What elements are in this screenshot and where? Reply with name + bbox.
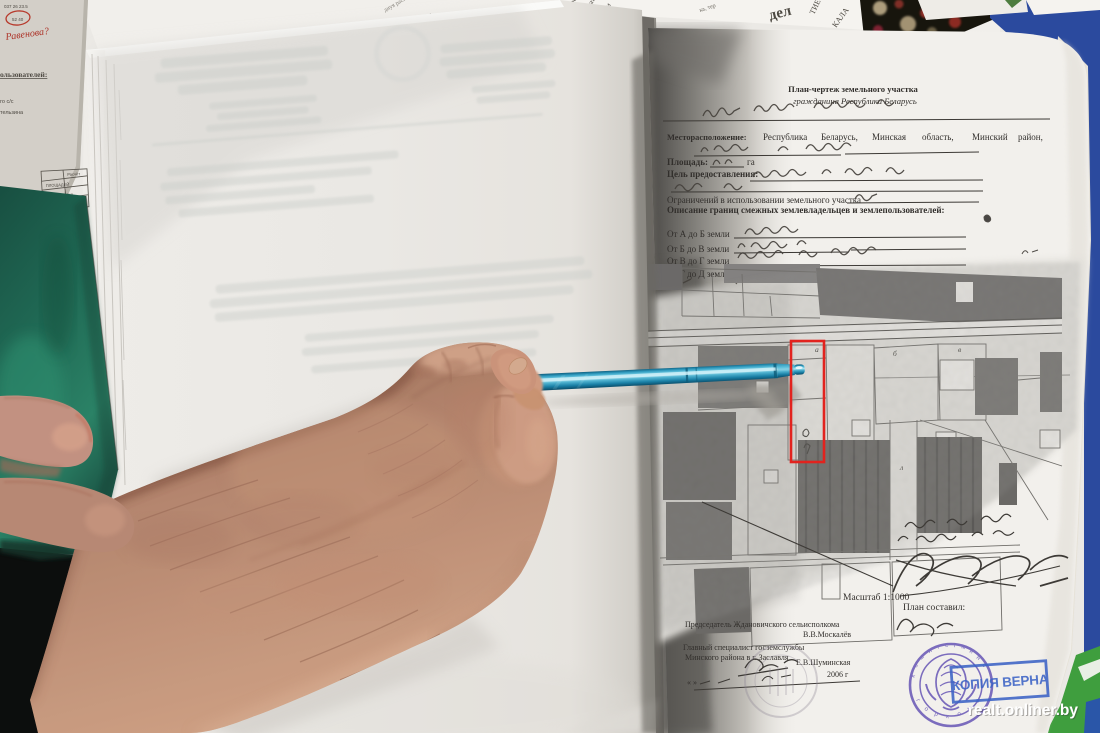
- svg-text:район,: район,: [1018, 132, 1043, 142]
- svg-text:Месторасположение:: Месторасположение:: [667, 133, 747, 142]
- svg-text:От А до Б земли: От А до Б земли: [667, 229, 730, 239]
- svg-text:го с/с: го с/с: [0, 99, 14, 105]
- svg-text:План составил:: План составил:: [903, 603, 965, 613]
- svg-text:План-чертеж земельного участка: План-чертеж земельного участка: [788, 84, 918, 94]
- svg-text:Минская: Минская: [872, 132, 906, 142]
- svg-text:От Б до В земли: От Б до В земли: [667, 244, 729, 254]
- svg-text:тельзина: тельзина: [0, 110, 24, 116]
- svg-text:realt.onliner.by: realt.onliner.by: [968, 702, 1079, 719]
- svg-text:Расчёт: Расчёт: [67, 171, 80, 177]
- svg-text:Главный специалист госземслужб: Главный специалист госземслужбы: [683, 643, 805, 652]
- svg-text:037 26 23.5: 037 26 23.5: [4, 4, 28, 9]
- svg-text:52 40: 52 40: [12, 17, 24, 22]
- svg-text:га: га: [747, 157, 755, 167]
- svg-text:В.В.Москалёв: В.В.Москалёв: [803, 630, 851, 639]
- svg-text:е: е: [945, 642, 949, 649]
- svg-text:Минского района в г. Заславля: Минского района в г. Заславля: [685, 653, 789, 662]
- svg-text:область,: область,: [922, 132, 954, 142]
- svg-text:Ограничений в использовании зе: Ограничений в использовании земельного у…: [667, 195, 861, 205]
- svg-text:Цель предоставления:: Цель предоставления:: [667, 169, 758, 179]
- svg-text:Е.В.Шуминская: Е.В.Шуминская: [796, 658, 851, 667]
- svg-text:Описание границ смежных землев: Описание границ смежных землевладельцев …: [667, 205, 945, 215]
- svg-text:Беларусь,: Беларусь,: [821, 132, 858, 142]
- svg-text:2006 г: 2006 г: [827, 670, 849, 679]
- svg-text:Республика: Республика: [763, 132, 807, 142]
- svg-text:Минский: Минский: [972, 132, 1008, 142]
- svg-text:Председатель Ждановичского сел: Председатель Ждановичского сельисполкома: [685, 620, 840, 629]
- svg-text:Масштаб 1:1000: Масштаб 1:1000: [843, 592, 910, 603]
- svg-text:« »: « »: [687, 678, 697, 687]
- svg-text:Площадь:: Площадь:: [667, 157, 708, 167]
- svg-text:ользователей:: ользователей:: [0, 70, 47, 79]
